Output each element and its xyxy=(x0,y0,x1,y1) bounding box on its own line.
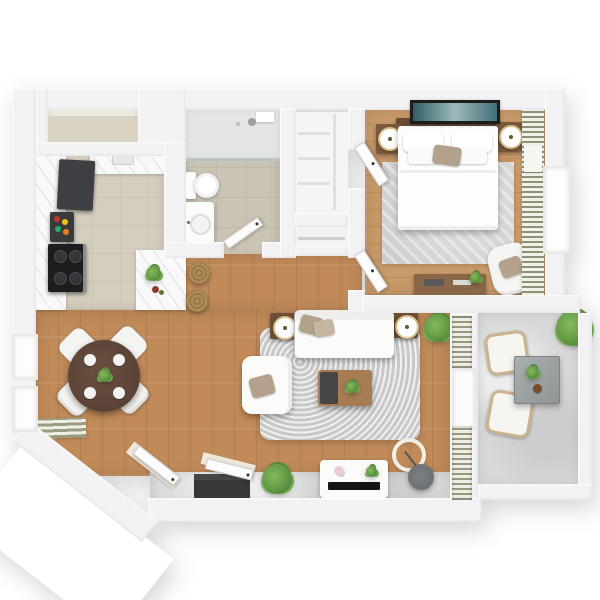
shower-glass xyxy=(186,158,280,161)
console-plant xyxy=(366,466,377,477)
desk-plant xyxy=(470,272,481,283)
wall-closet-mid xyxy=(295,213,348,227)
wall-pantry-bottom xyxy=(36,142,166,156)
floor-plan-canvas xyxy=(0,0,600,600)
burner-4 xyxy=(69,272,82,285)
place-setting-1 xyxy=(84,354,96,366)
living-corner-plant xyxy=(424,314,452,342)
wall-closet-ledge xyxy=(295,246,348,256)
vanity-sink xyxy=(190,214,211,235)
closet-upper-floor xyxy=(295,112,348,213)
place-setting-4 xyxy=(113,387,125,399)
refrigerator xyxy=(57,159,96,211)
table-lamp-right xyxy=(395,315,419,339)
apartment-floor-plan xyxy=(0,0,600,600)
coffee-table-tray xyxy=(320,372,338,404)
jute-stool-2 xyxy=(186,290,208,312)
pantry-shelf-band xyxy=(48,116,138,142)
wall-art xyxy=(410,100,500,124)
closet-shelf-3 xyxy=(298,182,330,185)
balcony-railing-bottom xyxy=(478,484,592,500)
produce-orange xyxy=(63,229,69,235)
linen-closet-rod xyxy=(298,237,345,240)
desk-items xyxy=(424,279,444,286)
bedside-lamp-right xyxy=(499,125,523,149)
closet-divider xyxy=(333,114,336,210)
vanity-faucet xyxy=(187,221,190,224)
tv-panel xyxy=(328,482,380,490)
balcony-door-blind-bottom xyxy=(452,426,472,500)
sofa-pillow-2 xyxy=(313,318,335,337)
floor-lamp-shade xyxy=(408,464,434,490)
jute-stool-1 xyxy=(188,262,210,284)
living-floor-plant xyxy=(262,464,292,494)
dining-window-1 xyxy=(12,334,38,380)
balcony-door-blind-top xyxy=(452,316,472,368)
shower-niche xyxy=(256,112,274,122)
console-decor xyxy=(334,466,344,476)
wall-bedroom-bottom xyxy=(362,295,580,313)
tv-console xyxy=(320,460,388,498)
burner-2 xyxy=(69,250,82,263)
balcony-table-bowl xyxy=(533,384,542,393)
bedroom-curtain xyxy=(522,110,544,308)
duvet-fold xyxy=(400,170,496,173)
bedroom-window xyxy=(543,166,571,254)
balcony-table-plant xyxy=(526,366,539,379)
balcony-table xyxy=(514,356,560,404)
produce-green xyxy=(55,226,61,232)
place-setting-3 xyxy=(84,387,96,399)
wall-bedroom-right-top xyxy=(545,88,565,170)
closet-shelf-1 xyxy=(298,132,330,135)
closet-shelf-2 xyxy=(298,157,330,160)
coffee-table-plant xyxy=(346,381,358,393)
dining-centerpiece xyxy=(98,369,111,382)
burner-1 xyxy=(54,250,67,263)
peninsula-veggies xyxy=(152,286,159,293)
wall-bath-right xyxy=(280,108,296,258)
peninsula-plant xyxy=(146,266,161,281)
wall-bath-bottom-left xyxy=(164,242,224,258)
peninsula-counter xyxy=(136,250,186,310)
wall-left-sliver xyxy=(36,88,48,144)
place-setting-2 xyxy=(113,354,125,366)
accent-pillow xyxy=(432,144,462,167)
balcony-sliding-door xyxy=(452,368,476,430)
produce-red xyxy=(54,216,60,222)
toilet-bowl xyxy=(194,173,219,198)
wall-bottom xyxy=(148,498,482,522)
produce-yellow xyxy=(62,219,68,225)
burner-3 xyxy=(54,272,67,285)
bedroom-sheer xyxy=(524,146,542,172)
dining-window-2 xyxy=(12,386,38,432)
wall-kitchen-bath xyxy=(164,142,186,254)
balcony-railing-right xyxy=(578,313,592,496)
shower-head xyxy=(248,118,256,126)
wall-bedroom-left-b xyxy=(348,188,365,258)
wall-pantry-right xyxy=(138,88,186,146)
